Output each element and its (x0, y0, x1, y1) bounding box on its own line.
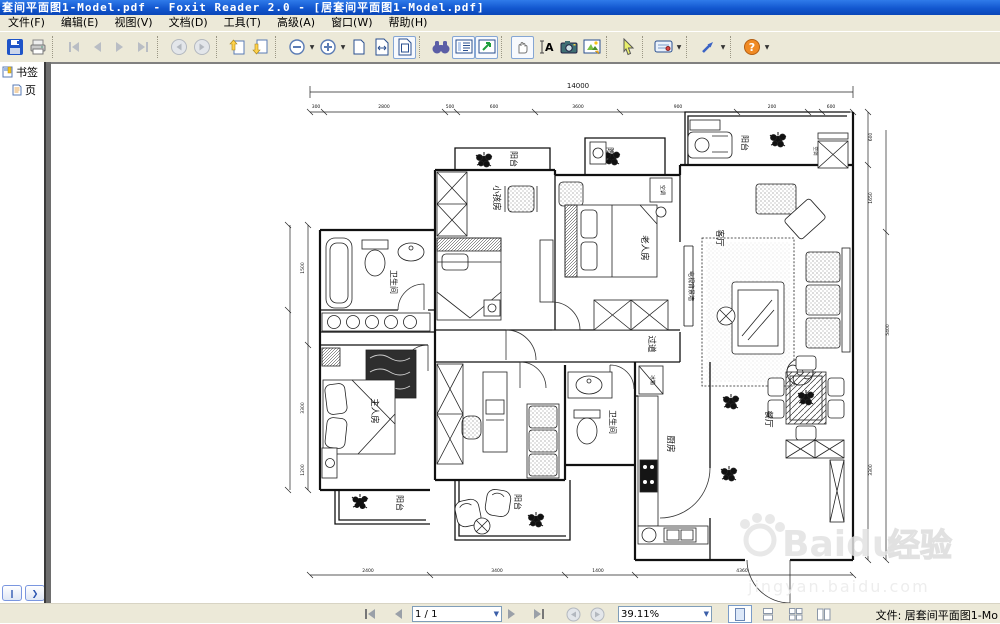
dim-label: 3600 (572, 104, 584, 110)
master-balcony-furniture (352, 494, 368, 509)
menu-tools[interactable]: 工具(T) (216, 15, 269, 31)
actual-size-icon (350, 38, 368, 56)
status-next-page-button[interactable] (506, 606, 518, 622)
panel-bottom-buttons: ‖ ❯ (2, 585, 45, 601)
reading-mode-button[interactable] (452, 36, 475, 59)
label-bathroom1: 卫生间 (389, 270, 399, 294)
label-ac-elder: 空调 (659, 185, 666, 195)
zoom-level-field[interactable]: 39.11% ▼ (618, 606, 712, 622)
bookmarks-icon (2, 66, 14, 78)
dim-label: 600 (490, 104, 499, 110)
zoom-level-value: 39.11% (621, 609, 659, 620)
dim-label: 2800 (378, 104, 390, 110)
fit-width-button[interactable] (370, 36, 393, 59)
full-screen-button[interactable] (475, 36, 498, 59)
next-page-icon (112, 39, 128, 55)
single-page-layout-button[interactable] (728, 605, 752, 623)
next-view-button[interactable] (249, 36, 272, 59)
find-button[interactable] (429, 36, 452, 59)
zoom-out-button[interactable] (285, 36, 308, 59)
full-screen-icon (477, 37, 497, 57)
drawing-arrow-button[interactable] (696, 36, 719, 59)
reading-mode-icon (454, 37, 474, 57)
go-forward-button[interactable] (190, 36, 213, 59)
bathroom2-fixtures (568, 372, 612, 444)
toolbar-separator (275, 36, 282, 58)
toolbar-separator (730, 36, 737, 58)
note-tool-button[interactable] (652, 36, 675, 59)
sidebar-item-bookmarks[interactable]: 书签 (0, 62, 44, 80)
camera-icon (559, 37, 579, 57)
dim-label: 1400 (592, 568, 604, 574)
convert-icon (582, 37, 602, 57)
arrow-tool-icon (699, 38, 717, 56)
actual-size-button[interactable] (347, 36, 370, 59)
select-text-icon: A (536, 37, 556, 57)
dim-label: 1200 (300, 464, 306, 476)
print-icon (29, 38, 47, 56)
save-button[interactable] (3, 36, 26, 59)
forward-icon (590, 607, 605, 622)
last-page-button[interactable] (131, 36, 154, 59)
label-dining-room: 餐厅 (763, 410, 773, 428)
menu-file[interactable]: 文件(F) (0, 15, 53, 31)
prev-view-icon (229, 38, 247, 56)
floor-plan: 14000 300 2800 500 600 3600 900 200 600 … (51, 64, 1000, 604)
hand-tool-button[interactable] (511, 36, 534, 59)
label-master-room: 主人房 (369, 398, 380, 424)
label-fridge: 冰箱 (649, 375, 656, 385)
prev-page-icon (89, 39, 105, 55)
back-icon (170, 38, 188, 56)
balcony-tr-furniture (688, 120, 848, 168)
status-prev-page-button[interactable] (392, 606, 404, 622)
next-view-icon (252, 38, 270, 56)
toolbar-separator (606, 36, 613, 58)
note-tool-dropdown[interactable]: ▼ (675, 36, 683, 59)
label-elder-room: 老人房 (639, 235, 650, 261)
status-first-page-button[interactable] (364, 606, 378, 622)
prev-page-icon (392, 608, 404, 620)
zoom-in-button[interactable] (316, 36, 339, 59)
watermark-badge: 经验 (888, 526, 952, 564)
convert-button[interactable] (580, 36, 603, 59)
first-page-button[interactable] (62, 36, 85, 59)
dim-label: 600 (827, 104, 836, 110)
note-icon (654, 37, 674, 57)
single-page-icon (734, 608, 746, 621)
master-room-furniture (322, 348, 416, 478)
prev-page-button[interactable] (85, 36, 108, 59)
toolbar-separator (52, 36, 59, 58)
snapshot-button[interactable] (557, 36, 580, 59)
dim-label: 2400 (362, 568, 374, 574)
dim-total-top: 14000 (567, 82, 589, 90)
status-bar: 1 / 1 ▼ 39.11% ▼ (0, 603, 1000, 624)
drawing-arrow-dropdown[interactable]: ▼ (719, 36, 727, 59)
next-page-icon (506, 608, 518, 620)
status-last-page-button[interactable] (532, 606, 546, 622)
dim-label: 500 (446, 104, 455, 110)
fit-page-icon (395, 37, 415, 57)
facing-layout-button[interactable] (812, 605, 836, 623)
svg-text:A: A (545, 41, 554, 54)
select-text-button[interactable]: A (534, 36, 557, 59)
kitchen-furniture (638, 366, 708, 544)
dim-label: 4360 (736, 568, 748, 574)
menu-document[interactable]: 文档(D) (161, 15, 216, 31)
toolbar-separator (216, 36, 223, 58)
window-title: 套间平面图1-Model.pdf - Foxit Reader 2.0 - [居… (2, 1, 485, 14)
label-bathroom2: 卫生间 (608, 410, 618, 434)
save-icon (6, 38, 24, 56)
menu-view[interactable]: 视图(V) (106, 15, 160, 31)
go-back-button[interactable] (167, 36, 190, 59)
zoom-in-icon (319, 38, 337, 56)
label-balcony-tr: 阳台 (740, 135, 750, 151)
label-balcony-study: 阳台 (513, 494, 523, 510)
sidebar-item-pages[interactable]: 页 (0, 80, 44, 98)
label-balcony-master: 阳台 (395, 495, 405, 511)
cursor-arrow-icon (619, 38, 637, 56)
binoculars-icon (431, 37, 451, 57)
toolbar-separator (419, 36, 426, 58)
navigation-panel: 书签 页 ‖ ❯ (0, 62, 45, 604)
continuous-facing-layout-button[interactable] (784, 605, 808, 623)
next-page-button[interactable] (108, 36, 131, 59)
dim-label: 200 (768, 104, 777, 110)
help-icon: ? (743, 38, 761, 56)
watermark-brand: Baidu (782, 524, 897, 565)
status-back-button[interactable] (566, 606, 581, 622)
hand-icon (513, 37, 533, 57)
dim-label: 1650 (868, 192, 874, 204)
main-toolbar: ▼ ▼ A (0, 32, 1000, 63)
label-tv-wall: 电视背景墙 (687, 271, 695, 301)
menu-edit[interactable]: 编辑(E) (53, 15, 107, 31)
page-number-field[interactable]: 1 / 1 ▼ (412, 606, 502, 622)
back-icon (566, 607, 581, 622)
pages-icon (11, 84, 23, 96)
zoom-dropdown-icon[interactable]: ▼ (700, 610, 709, 618)
facing-icon (817, 608, 831, 621)
living-room-furniture (702, 184, 850, 386)
label-kids-room: 小孩房 (491, 185, 502, 211)
study-balcony-furniture (454, 488, 544, 534)
title-bar: 套间平面图1-Model.pdf - Foxit Reader 2.0 - [居… (0, 0, 1000, 15)
toolbar-separator (501, 36, 508, 58)
page-dropdown-icon[interactable]: ▼ (490, 610, 499, 618)
status-forward-button[interactable] (590, 606, 605, 622)
dim-label: 3300 (300, 402, 306, 414)
dim-label: 900 (674, 104, 683, 110)
continuous-layout-button[interactable] (756, 605, 780, 623)
continuous-icon (762, 608, 774, 621)
menu-bar: 文件(F) 编辑(E) 视图(V) 文档(D) 工具(T) 高级(A) 窗口(W… (0, 15, 1000, 32)
print-button[interactable] (26, 36, 49, 59)
menu-advanced[interactable]: 高级(A) (269, 15, 323, 31)
dim-label: 3300 (868, 464, 874, 476)
label-balcony-kids: 阳台 (509, 151, 519, 167)
label-kitchen: 厨房 (665, 435, 676, 452)
fit-width-icon (372, 37, 392, 57)
label-living-room: 客厅 (714, 229, 725, 247)
fit-page-button[interactable] (393, 36, 416, 59)
file-name-status: 文件: 居套间平面图1-Mo (876, 607, 998, 623)
last-page-icon (135, 39, 151, 55)
help-dropdown[interactable]: ▼ (763, 36, 771, 59)
label-hallway: 过道 (646, 335, 657, 353)
dim-label: 5400 (885, 324, 891, 336)
bookmarks-label: 书签 (16, 64, 38, 80)
dim-label: 1500 (300, 262, 306, 274)
label-balcony-elder: 阳台 (605, 147, 615, 163)
toolbar-separator (157, 36, 164, 58)
menu-window[interactable]: 窗口(W) (323, 15, 380, 31)
forward-icon (193, 38, 211, 56)
toolbar-separator (686, 36, 693, 58)
select-annotation-button[interactable] (616, 36, 639, 59)
toolbar-separator (642, 36, 649, 58)
study-furniture (437, 364, 559, 478)
zoom-in-dropdown[interactable]: ▼ (339, 36, 347, 59)
first-page-icon (364, 608, 378, 620)
first-page-icon (66, 39, 82, 55)
prev-view-button[interactable] (226, 36, 249, 59)
panel-splitter-button[interactable]: ‖ (2, 585, 22, 601)
continuous-facing-icon (789, 608, 803, 621)
elder-room-furniture (559, 142, 672, 330)
dim-label: 300 (312, 104, 321, 110)
menu-help[interactable]: 帮助(H) (381, 15, 436, 31)
dim-label: 3400 (491, 568, 503, 574)
page-number-value: 1 / 1 (415, 609, 437, 620)
zoom-out-icon (288, 38, 306, 56)
foxit-reader-window: 套间平面图1-Model.pdf - Foxit Reader 2.0 - [居… (0, 0, 1000, 624)
help-button[interactable]: ? (740, 36, 763, 59)
document-canvas: 14000 300 2800 500 600 3600 900 200 600 … (51, 62, 1000, 604)
watermark-url: jingyan.baidu.com (747, 577, 930, 596)
dim-label: 600 (868, 133, 874, 142)
kids-room-furniture (437, 152, 553, 320)
panel-expand-button[interactable]: ❯ (25, 585, 45, 601)
last-page-icon (532, 608, 546, 620)
watermark: Baidu 经验 jingyan.baidu.com (740, 513, 952, 596)
pages-label: 页 (25, 82, 36, 98)
bathroom1-fixtures (322, 238, 430, 331)
zoom-out-dropdown[interactable]: ▼ (308, 36, 316, 59)
label-ac-tr: 空调 (812, 147, 819, 156)
svg-text:?: ? (748, 41, 754, 54)
